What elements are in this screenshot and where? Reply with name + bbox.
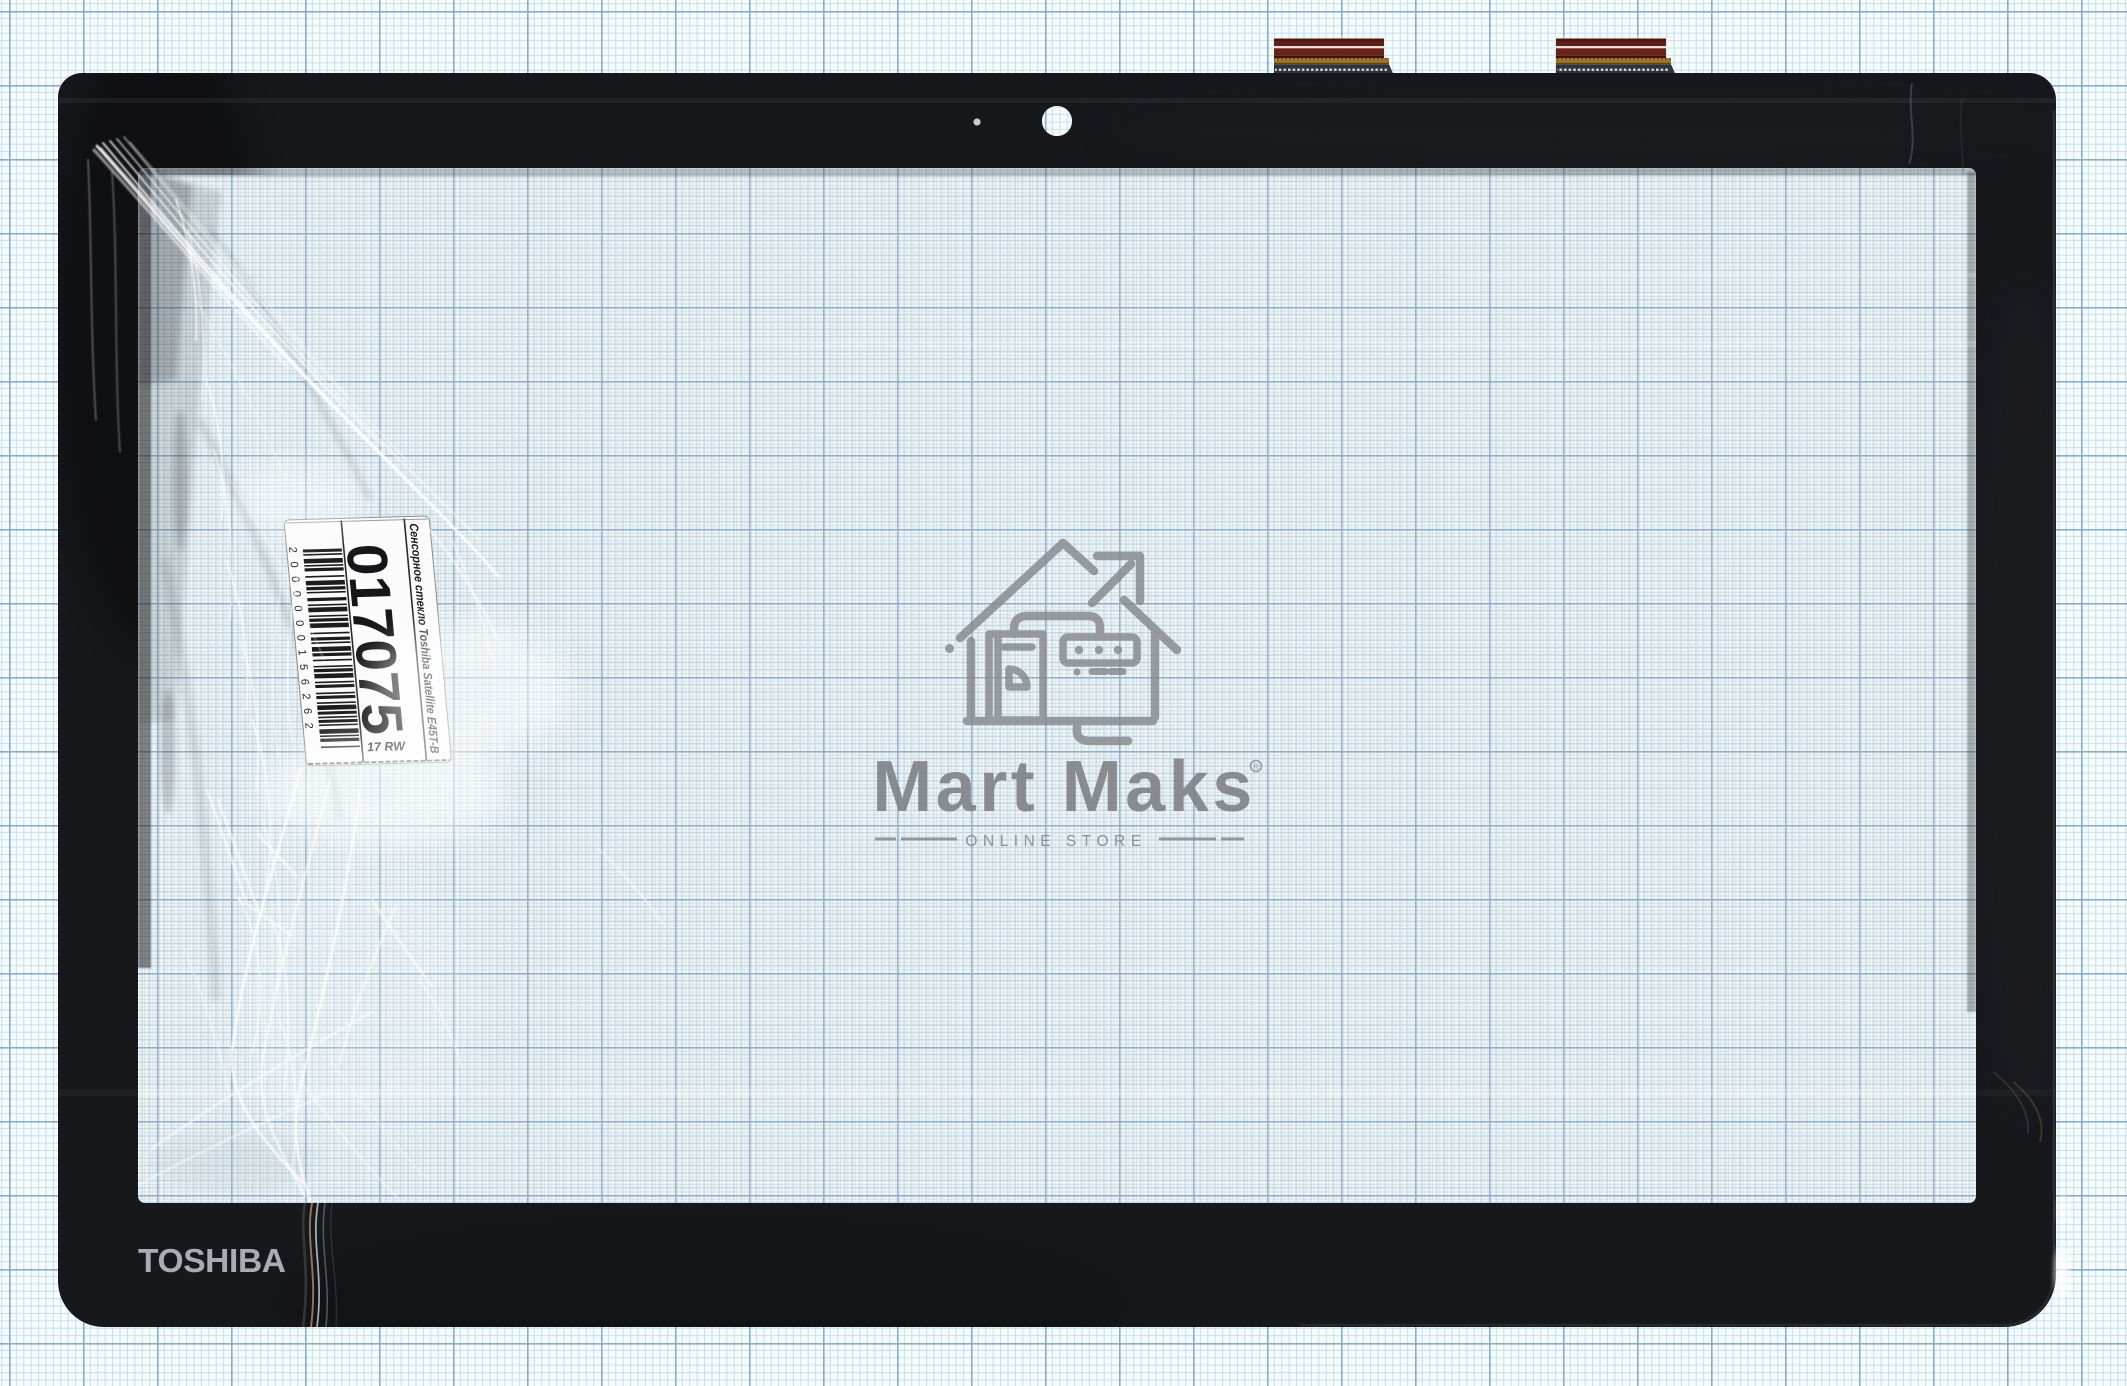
svg-text:ONLINE STORE: ONLINE STORE (965, 833, 1146, 850)
svg-text:TOSHIBA: TOSHIBA (138, 1243, 287, 1280)
svg-text:R: R (1253, 763, 1259, 772)
svg-text:Mart Maks: Mart Maks (872, 747, 1256, 827)
